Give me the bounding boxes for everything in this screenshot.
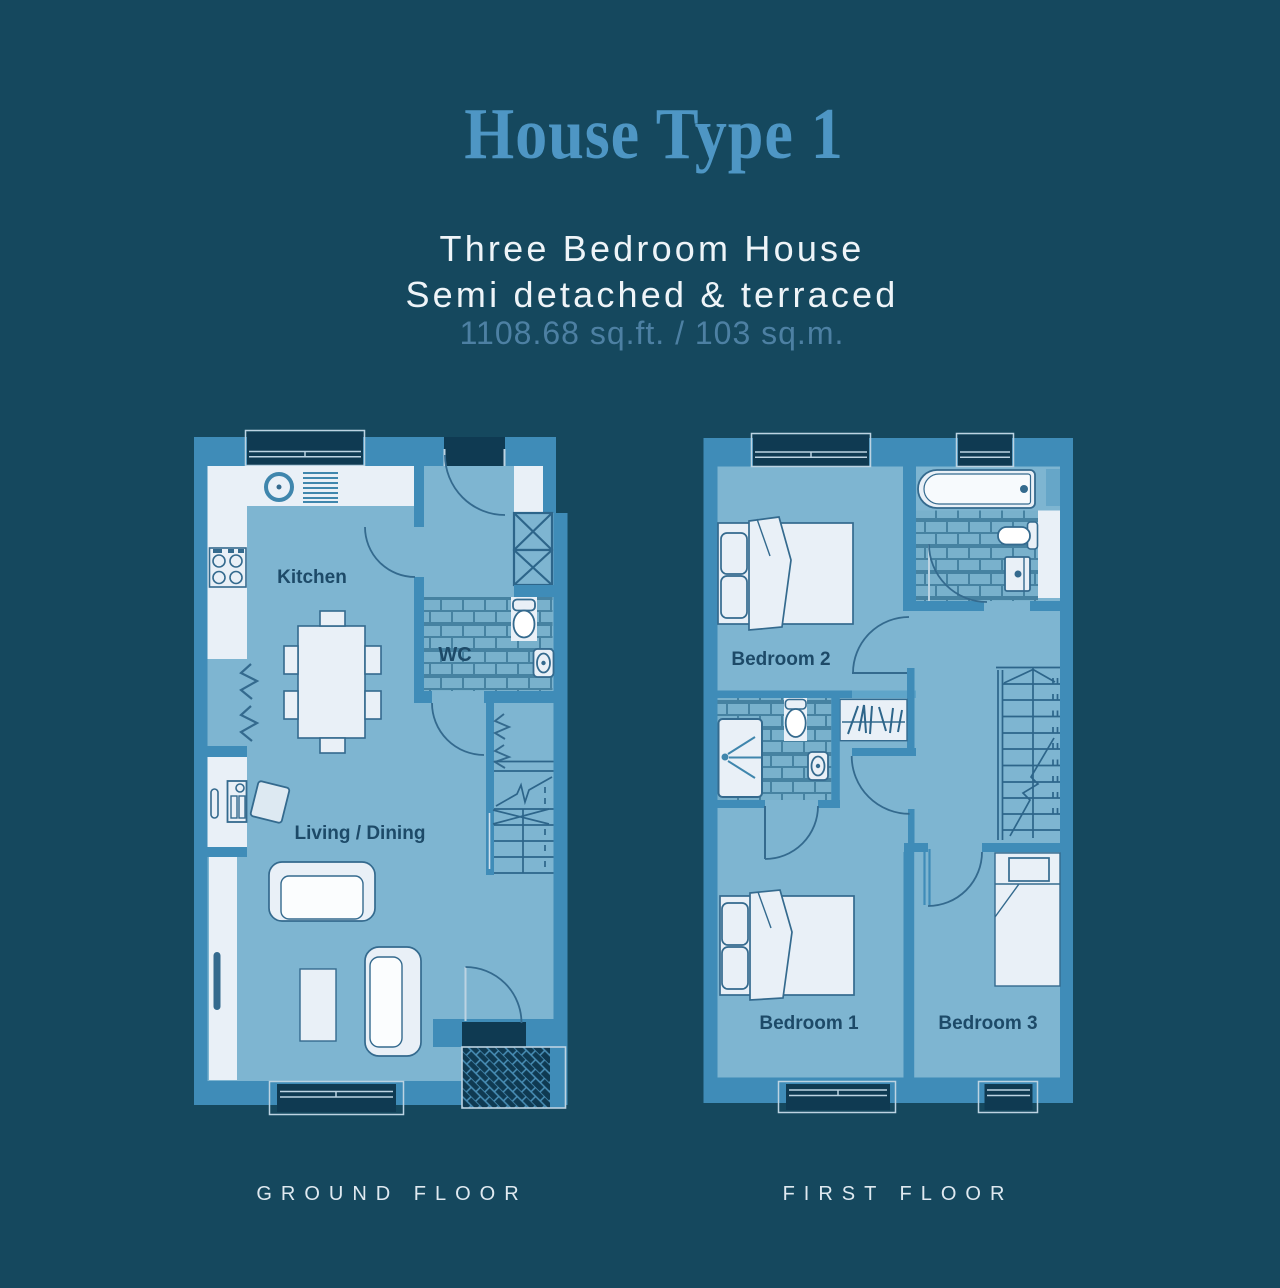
svg-text:WC: WC: [438, 644, 471, 666]
svg-text:Living / Dining: Living / Dining: [295, 823, 426, 844]
svg-text:Bedroom 3: Bedroom 3: [938, 1013, 1037, 1034]
svg-text:Bedroom 2: Bedroom 2: [731, 649, 830, 670]
svg-text:Bedroom 1: Bedroom 1: [759, 1013, 859, 1034]
svg-text:Kitchen: Kitchen: [277, 567, 347, 588]
